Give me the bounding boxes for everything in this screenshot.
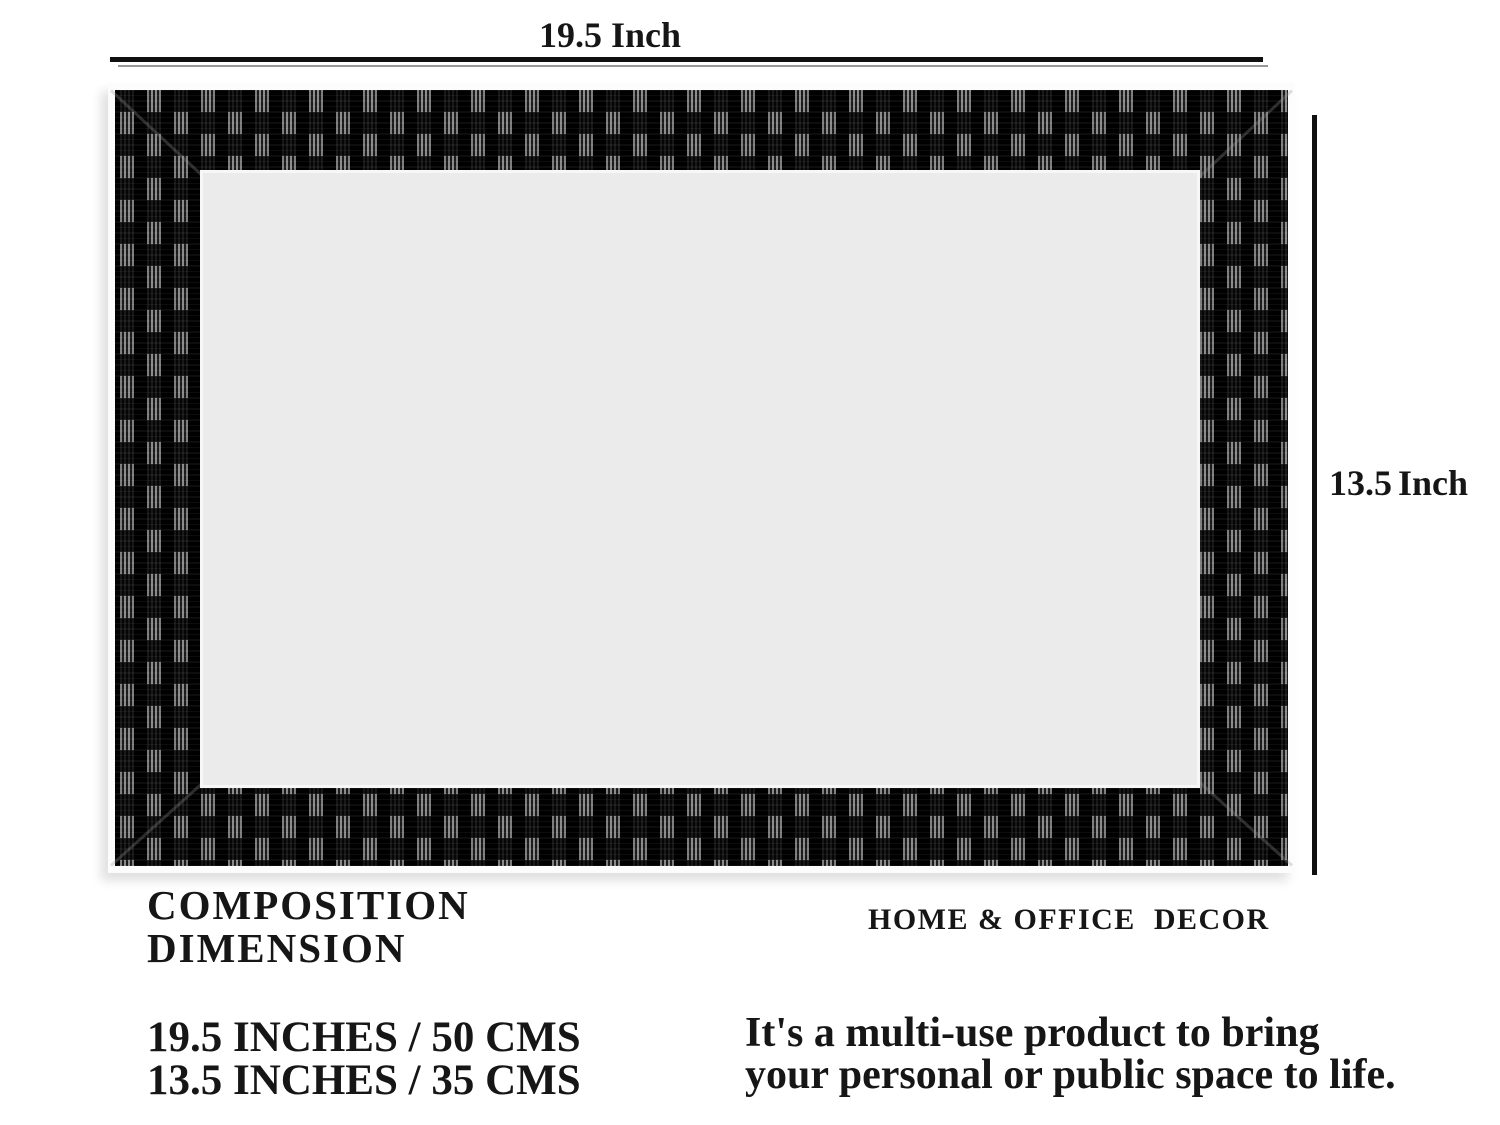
composition-heading-line-2: DIMENSION	[147, 927, 470, 970]
width-dimension-line-shadow	[118, 65, 1268, 67]
height-dimension-line	[1312, 115, 1317, 875]
height-dimension-label: 13.5 Inch	[1329, 462, 1468, 504]
composition-heading: COMPOSITION DIMENSION	[147, 884, 470, 970]
photo-frame	[108, 83, 1295, 873]
brand-heading: HOME & OFFICE DECOR	[868, 903, 1270, 937]
dimension-specs: 19.5 INCHES / 50 CMS 13.5 INCHES / 35 CM…	[147, 1016, 581, 1102]
width-dimension-line	[110, 57, 1263, 62]
product-tagline-line-2: your personal or public space to life.	[745, 1054, 1396, 1096]
product-tagline: It's a multi-use product to bring your p…	[745, 1012, 1396, 1096]
frame-miter-top-left	[110, 89, 205, 178]
width-dimension-label: 19.5 Inch	[450, 14, 770, 56]
frame-miter-bottom-left	[110, 779, 206, 866]
frame-inner-panel	[200, 170, 1200, 788]
product-dimension-diagram: 19.5 Inch 13.5 Inch COMPOSITION DIMENSIO…	[0, 0, 1500, 1125]
composition-heading-line-1: COMPOSITION	[147, 884, 470, 927]
dimension-spec-line-1: 19.5 INCHES / 50 CMS	[147, 1016, 581, 1059]
product-tagline-line-1: It's a multi-use product to bring	[745, 1012, 1396, 1054]
dimension-spec-line-2: 13.5 INCHES / 35 CMS	[147, 1059, 581, 1102]
frame-miter-bottom-right	[1197, 779, 1293, 866]
frame-miter-top-right	[1198, 89, 1293, 178]
